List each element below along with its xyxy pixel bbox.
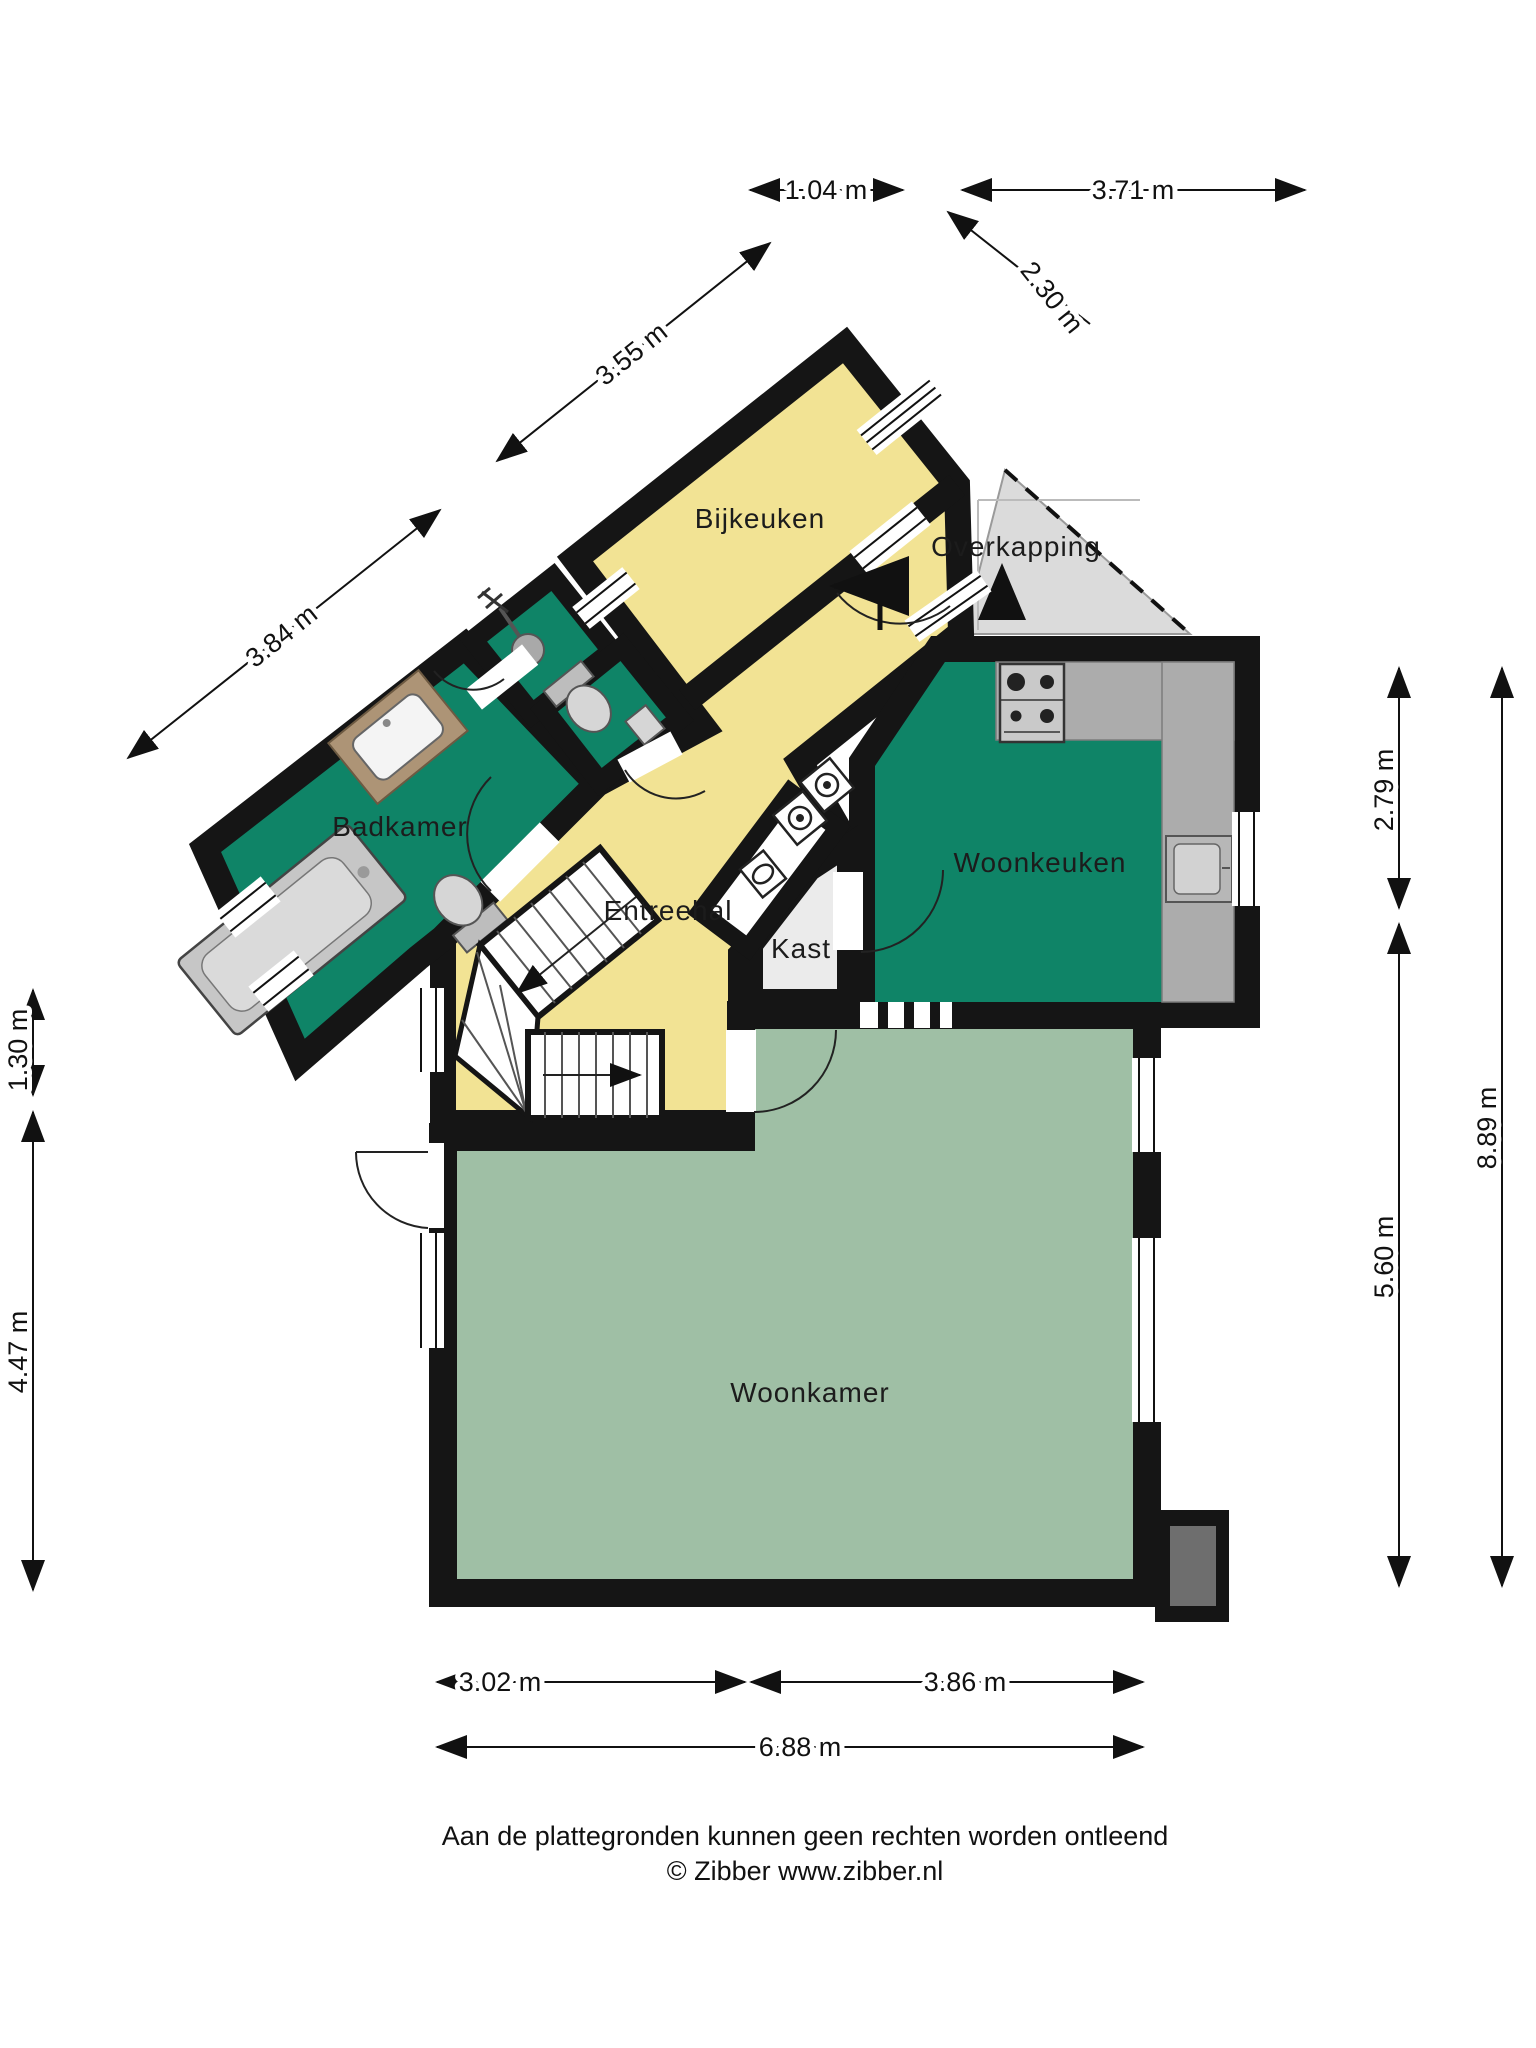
window [414,988,444,1072]
dim-right-inner-lower: 5.60 m [1369,1216,1399,1299]
window [1132,1058,1162,1152]
faucet-icon [478,588,508,612]
room-label-overkapping: Overkapping [931,531,1101,562]
front-door [356,1143,444,1228]
kitchen-sink-icon [1166,836,1232,902]
room-label-bijkeuken: Bijkeuken [695,503,825,534]
dim-left-upper: 1.30 m [3,1009,33,1092]
dim-bottom-total: 6.88 m [759,1732,842,1762]
floorplan-drawing: Bijkeuken Overkapping Badkamer Entreehal… [176,345,1262,1622]
dim-top-small: 1.04 m [785,175,868,205]
room-label-entreehal: Entreehal [604,895,733,926]
stove-icon [1000,664,1064,742]
window [1232,812,1262,906]
dim-right-outer: 8.89 m [1472,1087,1502,1170]
floorplan-page: Bijkeuken Overkapping Badkamer Entreehal… [0,0,1536,2048]
dim-bottom-right: 3.86 m [924,1667,1007,1697]
dim-right-inner-upper: 2.79 m [1369,749,1399,832]
flue-niche [1155,1510,1229,1622]
dim-top-wide: 3.71 m [1092,175,1175,205]
room-label-woonkamer: Woonkamer [730,1377,889,1408]
dim-top-diagonal: 2.30 m [1015,256,1090,339]
room-label-kast: Kast [771,933,831,964]
footer-disclaimer: Aan de plattegronden kunnen geen rechten… [442,1821,1169,1851]
dim-lower-left-diagonal: 3.84 m [240,598,323,673]
window [414,1233,444,1348]
room-label-woonkeuken: Woonkeuken [954,847,1127,878]
room-label-badkamer: Badkamer [332,811,468,842]
dim-bottom-left: 3.02 m [459,1667,542,1697]
dim-upper-left-diagonal: 3.55 m [590,316,673,391]
floorplan-canvas: Bijkeuken Overkapping Badkamer Entreehal… [0,0,1536,2048]
internal-window [860,1002,952,1028]
dim-left-lower: 4.47 m [3,1311,33,1394]
footer-credit: © Zibber www.zibber.nl [667,1856,944,1886]
window [1132,1238,1162,1422]
